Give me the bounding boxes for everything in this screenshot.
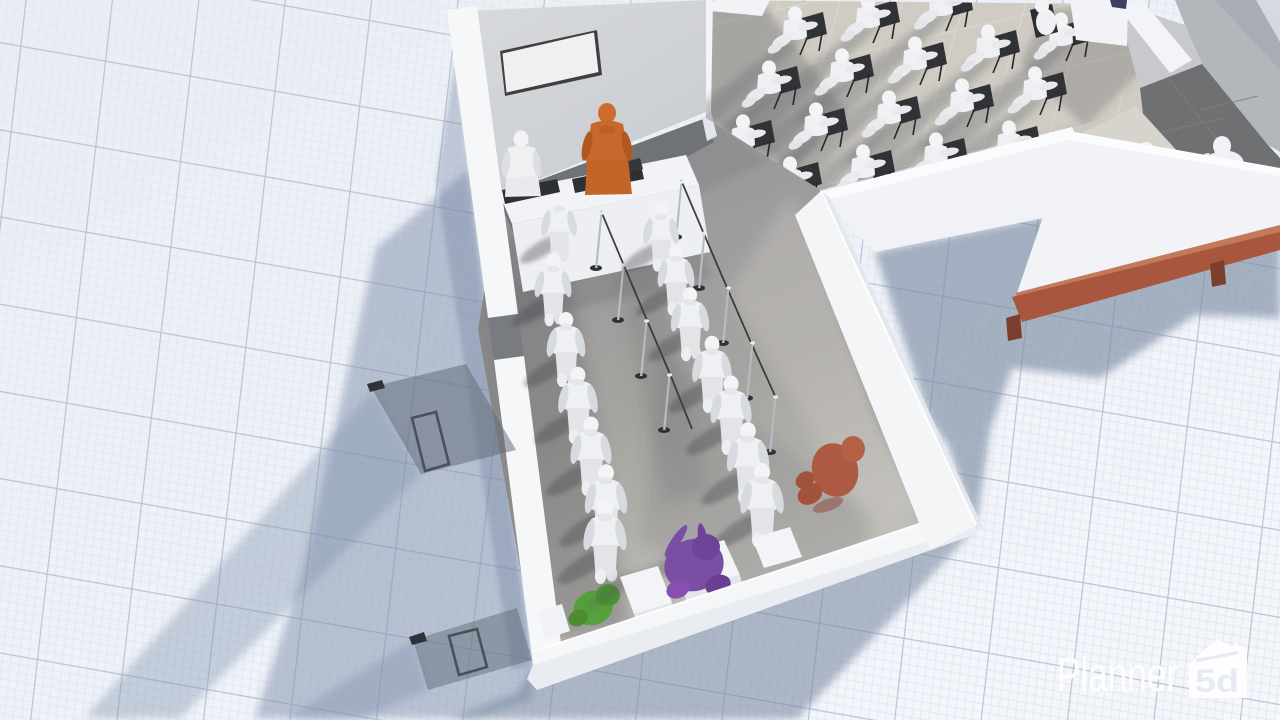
svg-text:5d: 5d	[1195, 663, 1239, 699]
svg-text:Planner: Planner	[1057, 649, 1178, 702]
